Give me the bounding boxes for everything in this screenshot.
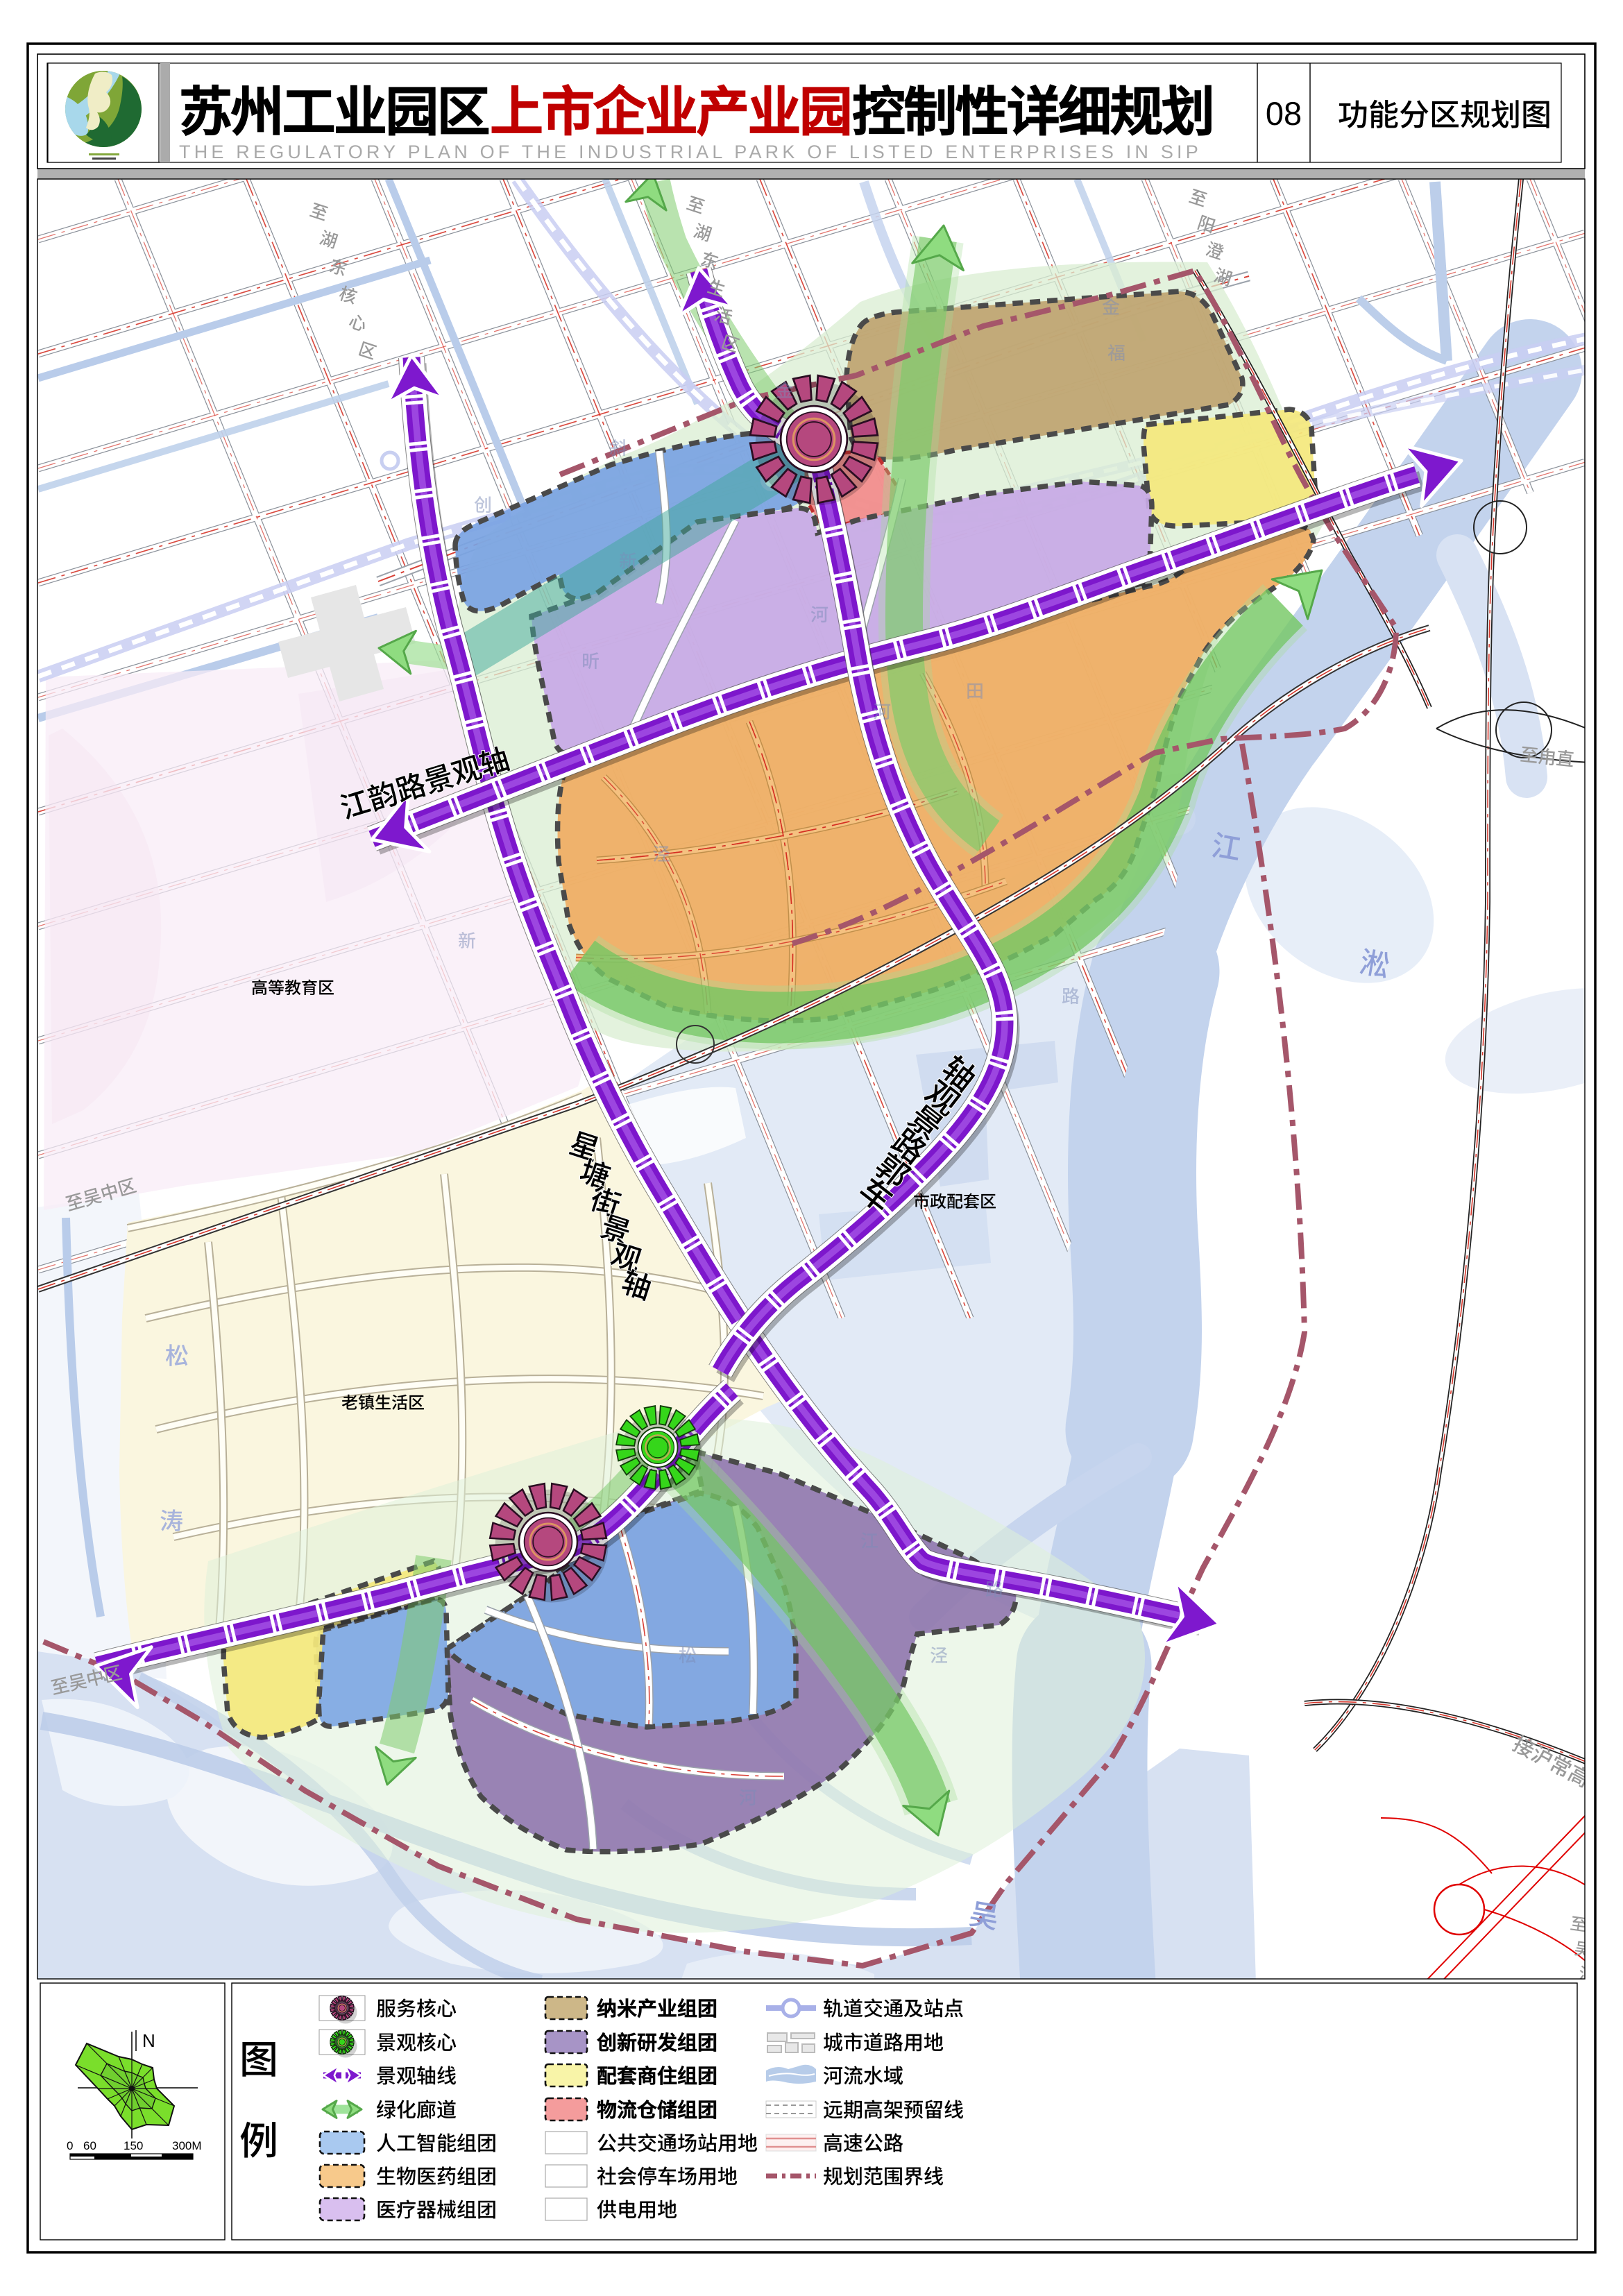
svg-text:150: 150 [124, 2139, 143, 2152]
svg-text:0: 0 [67, 2139, 73, 2152]
svg-text:300M: 300M [172, 2139, 202, 2152]
svg-text:THE REGULATORY PLAN OF THE IND: THE REGULATORY PLAN OF THE INDUSTRIAL PA… [179, 142, 1202, 162]
svg-text:60: 60 [83, 2139, 96, 2152]
svg-text:N: N [142, 2030, 155, 2051]
svg-text:08: 08 [1266, 95, 1302, 132]
